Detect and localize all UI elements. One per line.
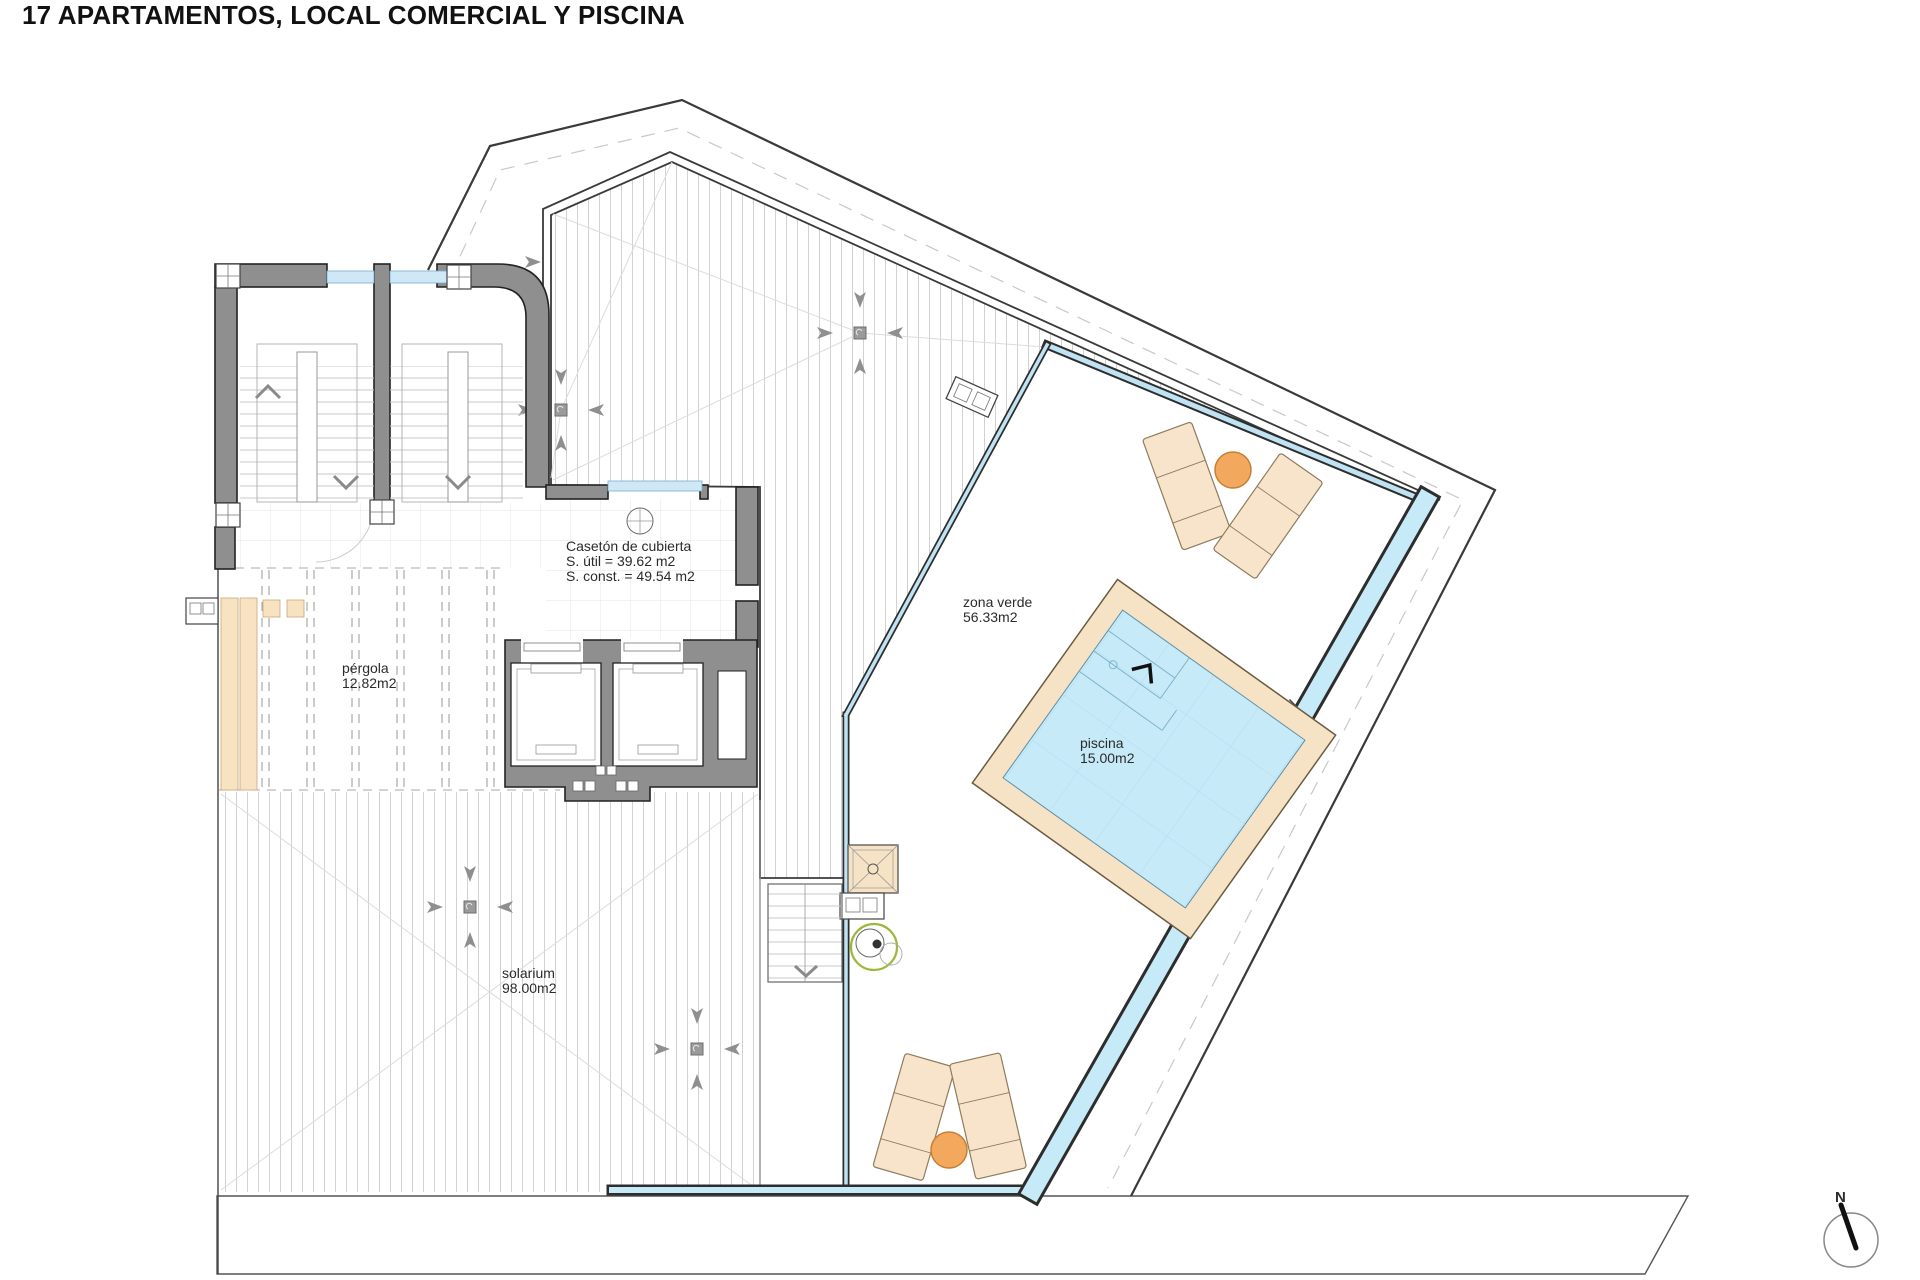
caseton-window (608, 481, 702, 491)
elevator-shaft-1 (511, 663, 601, 766)
floor-plan-page: 17 APARTAMENTOS, LOCAL COMERCIAL Y PISCI… (0, 0, 1920, 1280)
svg-text:S. útil = 39.62 m2: S. útil = 39.62 m2 (566, 553, 676, 569)
deck-fixture (840, 893, 884, 919)
svg-text:solarium: solarium (502, 965, 555, 981)
svg-text:56.33m2: 56.33m2 (963, 609, 1018, 625)
potted-plant (851, 924, 902, 970)
floor-plan-svg: Casetón de cubierta S. útil = 39.62 m2 S… (0, 0, 1920, 1280)
svg-text:98.00m2: 98.00m2 (502, 980, 557, 996)
north-arrow: N (1824, 1189, 1878, 1267)
svg-text:zona verde: zona verde (963, 594, 1032, 610)
bottom-parapet-band (217, 1196, 1688, 1274)
roof-arrow (525, 256, 541, 268)
terrace-stairs (768, 884, 842, 982)
pool (972, 579, 1335, 938)
svg-text:S. const. = 49.54 m2: S. const. = 49.54 m2 (566, 568, 695, 584)
column (447, 265, 471, 289)
svg-text:Casetón de cubierta: Casetón de cubierta (566, 538, 692, 554)
niche (718, 671, 746, 759)
svg-text:15.00m2: 15.00m2 (1080, 750, 1135, 766)
solarium-area (219, 792, 760, 1192)
svg-text:piscina: piscina (1080, 735, 1124, 751)
zona-verde-label: zona verde 56.33m2 (963, 594, 1032, 625)
column (216, 264, 240, 288)
column (216, 503, 240, 527)
svg-text:pérgola: pérgola (342, 660, 389, 676)
elevator-shaft-2 (613, 663, 703, 766)
elevator-block (505, 639, 757, 801)
side-table (1215, 452, 1251, 488)
wall-fixture (186, 598, 218, 624)
planter (848, 845, 898, 893)
sun-lounger (1142, 422, 1231, 551)
north-label: N (1835, 1189, 1846, 1206)
column (370, 500, 394, 524)
solarium-label: solarium 98.00m2 (502, 965, 557, 996)
staircase-left (240, 344, 374, 502)
staircase-right (390, 344, 523, 502)
svg-text:12.82m2: 12.82m2 (342, 675, 397, 691)
pergola-label: pérgola 12.82m2 (342, 660, 397, 691)
side-table (931, 1132, 967, 1168)
